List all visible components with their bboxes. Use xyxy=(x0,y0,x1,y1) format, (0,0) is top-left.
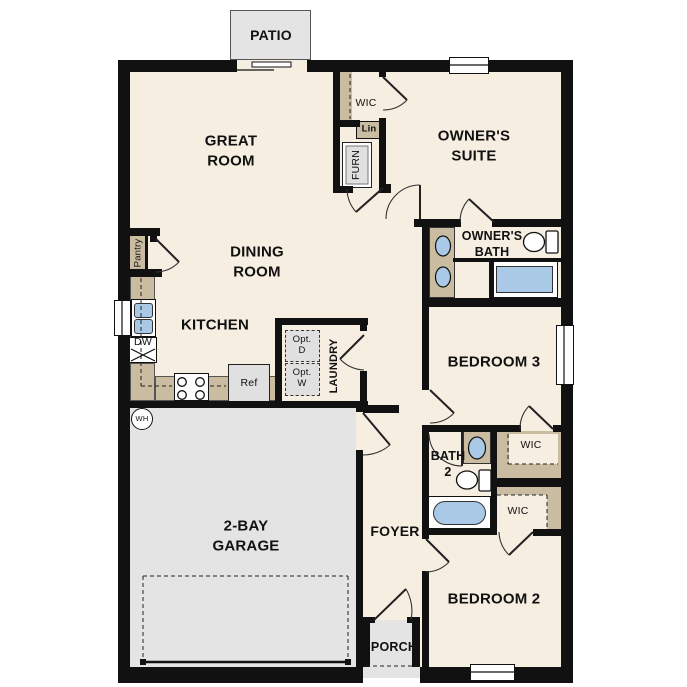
label-furn: FURN xyxy=(350,150,364,180)
floor-plan: PATIO GREAT ROOM DINING ROOM KITCHEN OWN… xyxy=(0,0,687,687)
wall-wic-divider xyxy=(333,120,360,127)
label-porch: PORCH xyxy=(371,639,417,655)
label-opt-d: Opt. D xyxy=(293,335,312,357)
kitchen-counter-corner xyxy=(130,363,155,401)
wall-obath-top-b xyxy=(492,219,561,227)
label-wic-owner: WIC xyxy=(355,97,376,111)
kitchen-sink-bowl-2 xyxy=(134,319,153,334)
wall-porch-left xyxy=(360,617,370,667)
owner-wic-shelf xyxy=(340,72,352,120)
label-patio: PATIO xyxy=(250,26,292,44)
wall-bed3-left xyxy=(422,307,429,390)
kitchen-sink-bowl-1 xyxy=(134,303,153,318)
label-wic-bed2: WIC xyxy=(507,505,528,519)
wall-entry-jamb-left xyxy=(360,617,375,623)
label-wic-bed3: WIC xyxy=(520,439,541,453)
wall-furn-hinge-stub xyxy=(379,184,391,193)
window-bedroom3 xyxy=(556,325,574,385)
wall-foyer-bed2-b xyxy=(422,571,429,667)
wall-bath2-bottom xyxy=(422,528,497,535)
wall-pantry-stub xyxy=(150,228,157,242)
wall-foyer-bed2-a xyxy=(422,432,429,539)
wall-furn-bottom-stub xyxy=(333,186,353,193)
wall-bath2-corner-stub xyxy=(422,425,429,432)
wall-owner-tub-stub xyxy=(489,262,494,298)
wall-obath-bottom xyxy=(422,298,573,307)
wall-garage-right-a xyxy=(356,401,363,412)
wall-exterior-left xyxy=(118,60,130,683)
wall-foyer-north xyxy=(363,405,399,413)
owner-tub xyxy=(496,266,553,293)
label-dining-room: DINING ROOM xyxy=(230,243,284,282)
wall-bed3-bottom-stub xyxy=(553,425,561,432)
label-garage: 2-BAY GARAGE xyxy=(212,517,279,556)
wall-laundry-top xyxy=(275,318,368,325)
label-foyer: FOYER xyxy=(370,522,419,540)
bath2-tub xyxy=(433,501,486,525)
window-owners-suite xyxy=(449,57,489,74)
wall-exterior-bottom-left xyxy=(118,667,363,683)
wall-garage-top xyxy=(118,401,368,408)
wall-wic2-bottom xyxy=(533,529,561,536)
window-kitchen xyxy=(114,300,131,336)
label-kitchen: KITCHEN xyxy=(181,315,249,335)
bath2-vanity xyxy=(463,431,491,464)
label-owners-bath: OWNER'S BATH xyxy=(462,228,523,261)
wall-block-right xyxy=(379,118,386,193)
wall-pantry-bottom xyxy=(118,269,162,277)
label-bedroom3: BEDROOM 3 xyxy=(448,352,541,372)
label-dw: DW xyxy=(134,336,152,350)
patio-slider-opening xyxy=(237,60,307,72)
wall-laundry-right-a xyxy=(360,318,367,331)
owner-vanity xyxy=(429,227,455,298)
window-bedroom2 xyxy=(470,664,515,681)
wall-hall-hinge-stub xyxy=(414,219,425,227)
wall-wic-divider-h xyxy=(491,478,561,487)
wall-obath-left xyxy=(422,227,429,307)
label-opt-w: Opt. W xyxy=(293,368,312,390)
wall-entry-jamb-right xyxy=(407,617,420,623)
label-pantry: Pantry xyxy=(134,239,145,268)
label-lin: Lin xyxy=(362,125,377,136)
label-laundry: LAUNDRY xyxy=(327,339,341,394)
wall-laundry-left xyxy=(275,318,282,408)
range-stove xyxy=(174,373,209,401)
label-bath2: BATH 2 xyxy=(431,448,466,481)
wall-exterior-top xyxy=(118,60,573,72)
label-wh: WH xyxy=(136,414,149,424)
label-ref: Ref xyxy=(241,377,258,391)
wall-wic-right-stub xyxy=(379,60,386,77)
label-great-room: GREAT ROOM xyxy=(205,132,257,171)
label-owners-suite: OWNER'S SUITE xyxy=(438,127,510,166)
label-bedroom2: BEDROOM 2 xyxy=(448,589,541,609)
wall-obath-top-a xyxy=(425,219,461,227)
